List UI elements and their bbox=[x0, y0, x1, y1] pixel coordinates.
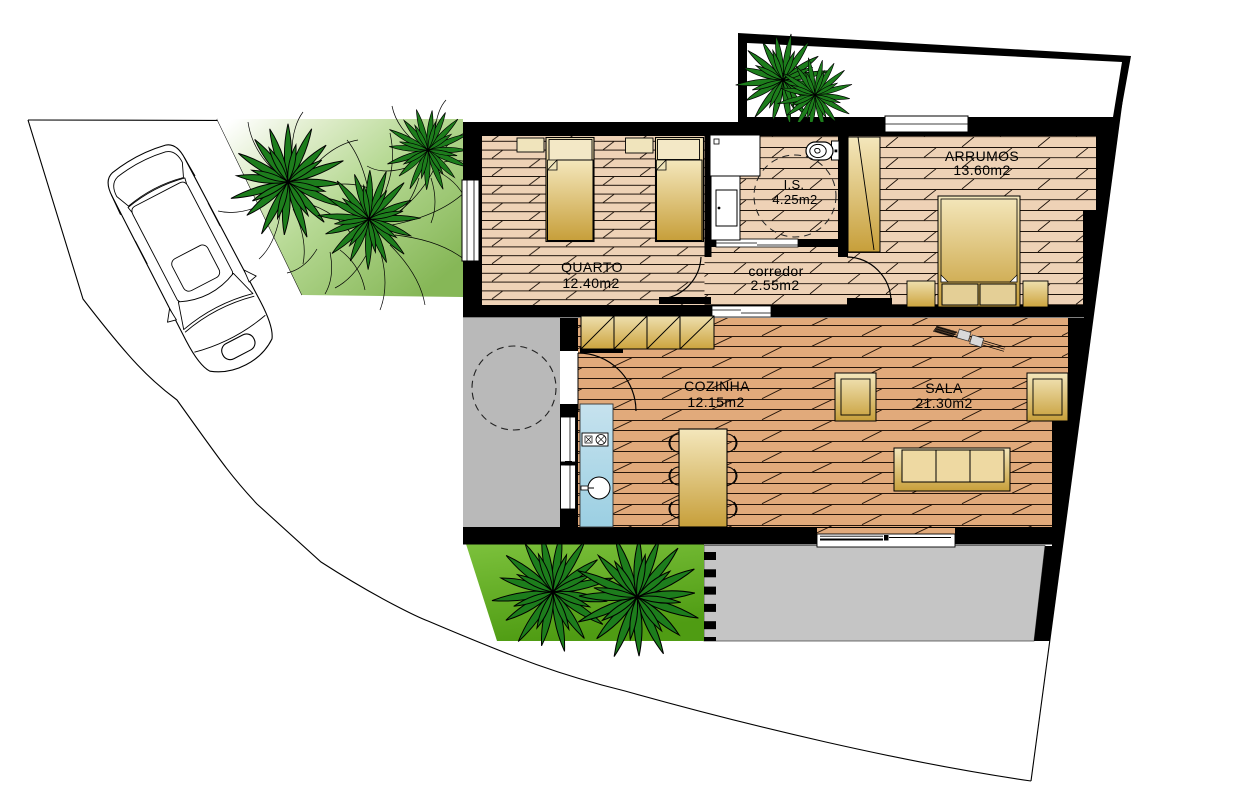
svg-text:2.55m2: 2.55m2 bbox=[750, 277, 799, 293]
svg-text:I.S.: I.S. bbox=[784, 177, 805, 192]
svg-text:QUARTO: QUARTO bbox=[561, 259, 623, 275]
svg-text:COZINHA: COZINHA bbox=[684, 378, 750, 394]
svg-text:21.30m2: 21.30m2 bbox=[915, 395, 972, 411]
svg-text:12.40m2: 12.40m2 bbox=[562, 275, 619, 291]
svg-text:SALA: SALA bbox=[925, 380, 963, 396]
svg-text:13.60m2: 13.60m2 bbox=[953, 162, 1010, 178]
svg-text:4.25m2: 4.25m2 bbox=[772, 192, 817, 207]
svg-text:12.15m2: 12.15m2 bbox=[687, 394, 744, 410]
